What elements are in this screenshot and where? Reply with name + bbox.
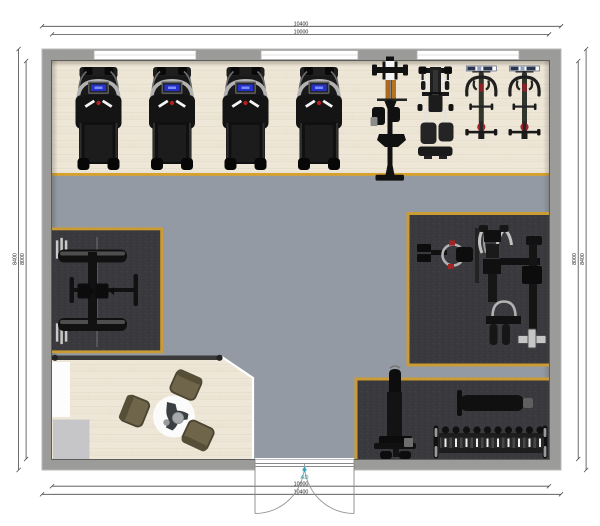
svg-text:8000: 8000	[20, 253, 26, 265]
svg-text:10000: 10000	[294, 30, 309, 36]
svg-text:8400: 8400	[12, 253, 18, 265]
svg-text:AD: AD	[300, 475, 308, 481]
svg-text:8400: 8400	[580, 253, 586, 265]
svg-text:8000: 8000	[572, 253, 578, 265]
svg-text:10400: 10400	[294, 22, 309, 28]
